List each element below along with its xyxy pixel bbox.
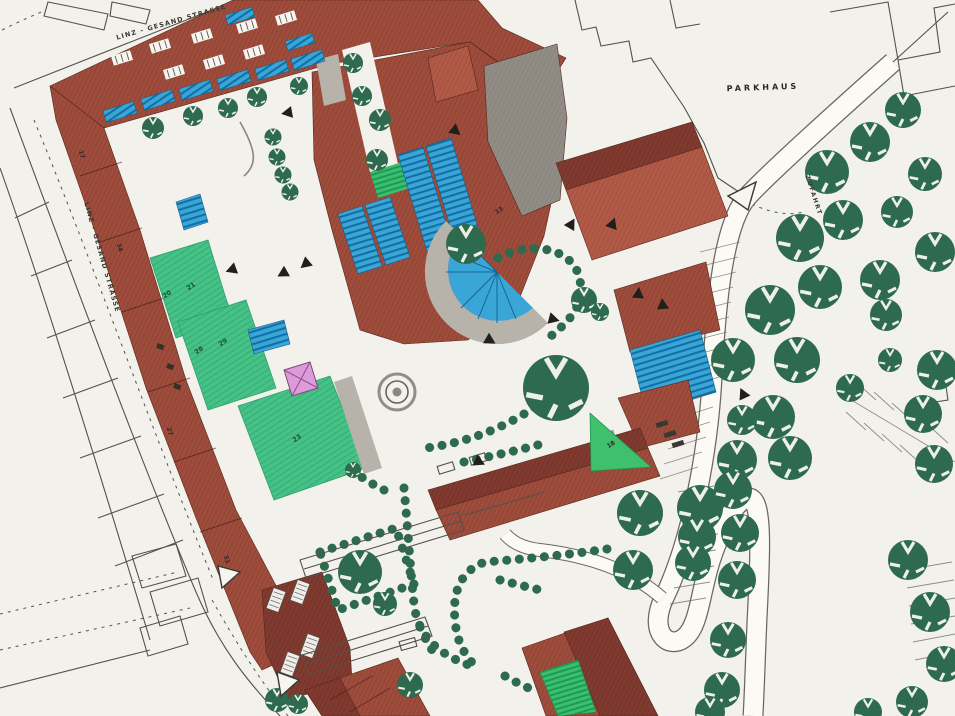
topleft-parcel — [44, 2, 108, 30]
topright-context-buildings — [830, 2, 955, 96]
hedge-dots-mid — [500, 580, 540, 590]
zufahrt-dashed-curve — [752, 204, 804, 214]
topleft-dashed-boundary — [2, 10, 46, 30]
fountain — [379, 374, 415, 410]
hedge-dots-bottom — [505, 676, 533, 690]
west-wing-blue-patch — [176, 194, 208, 230]
topleft-parcel-2 — [110, 2, 150, 24]
site-plan-scan: LINZ - GESAND STRASSE LINZ - GESAND STRA… — [0, 0, 955, 716]
site-plan-svg: LINZ - GESAND STRASSE LINZ - GESAND STRA… — [0, 0, 955, 716]
hedge-spiral-tail — [426, 400, 545, 448]
parkhaus-boundary-step — [670, 0, 700, 28]
parkhaus-label: PARKHAUS — [726, 82, 799, 94]
courtyard-path-curve — [240, 122, 253, 176]
